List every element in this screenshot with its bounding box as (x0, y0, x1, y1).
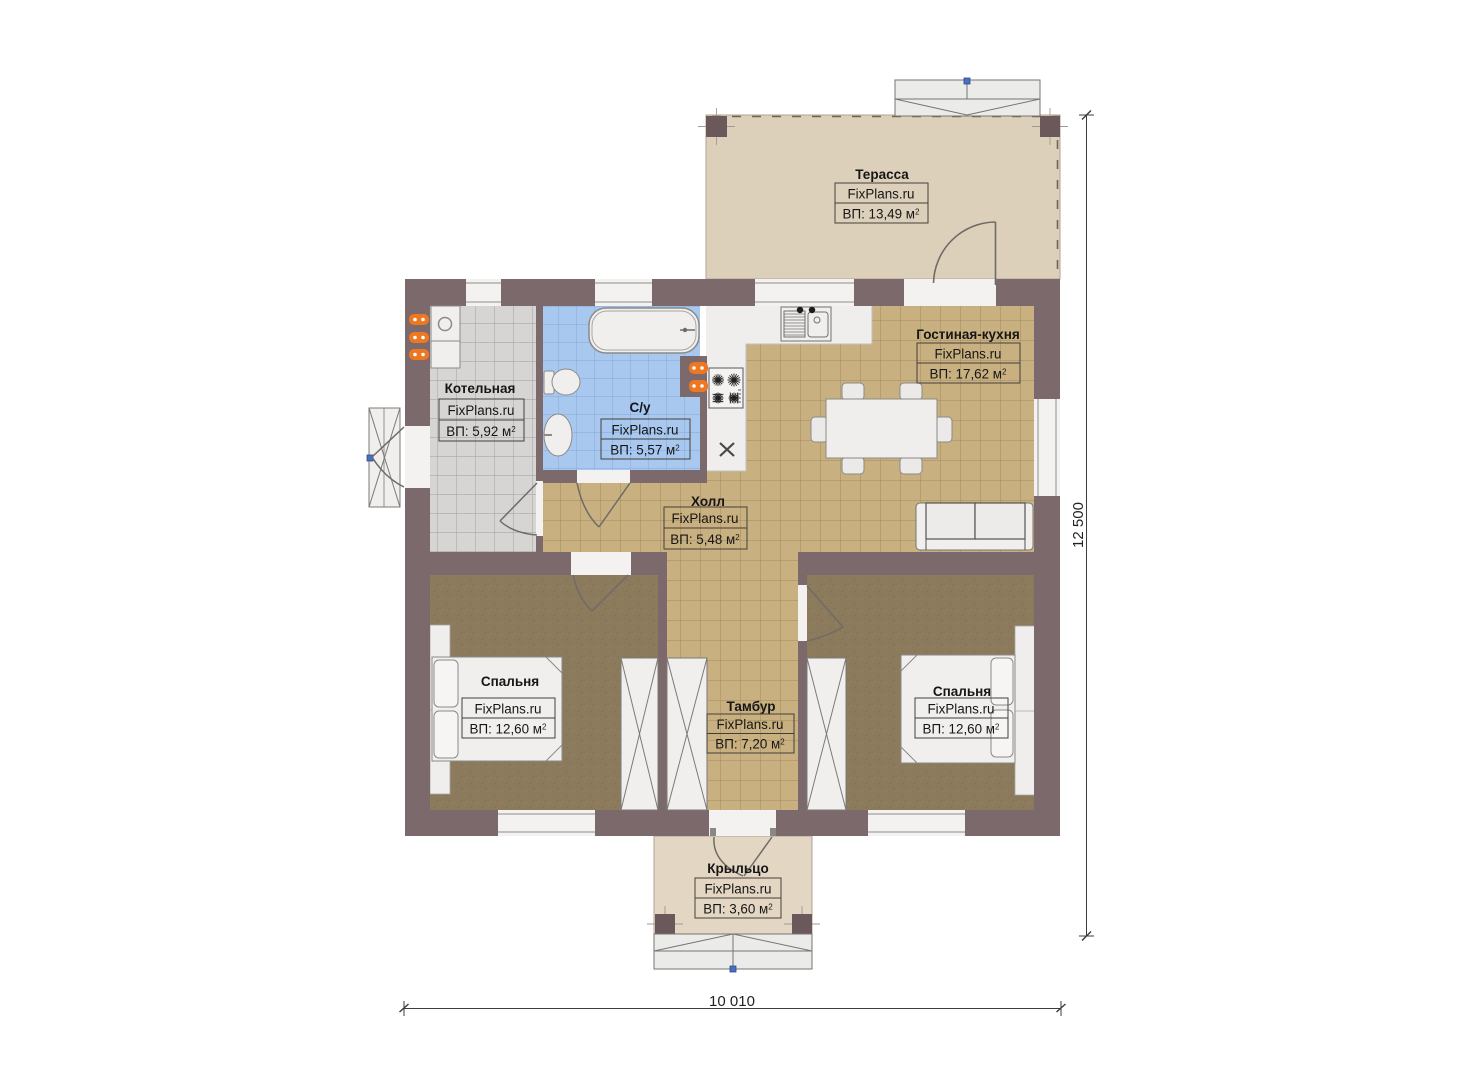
svg-text:Спальня: Спальня (933, 684, 991, 699)
svg-text:FixPlans.ru: FixPlans.ru (935, 347, 1002, 362)
svg-text:Терасса: Терасса (855, 167, 909, 182)
svg-text:10 010: 10 010 (709, 993, 755, 1010)
svg-text:Котельная: Котельная (445, 381, 516, 396)
svg-text:Тамбур: Тамбур (727, 699, 776, 714)
svg-text:FixPlans.ru: FixPlans.ru (612, 423, 679, 438)
svg-text:FixPlans.ru: FixPlans.ru (928, 702, 995, 717)
svg-text:FixPlans.ru: FixPlans.ru (705, 882, 772, 897)
svg-text:Крыльцо: Крыльцо (707, 861, 768, 876)
svg-text:ВП: 3,60 м2: ВП: 3,60 м2 (703, 902, 773, 917)
svg-text:FixPlans.ru: FixPlans.ru (848, 187, 915, 202)
svg-text:FixPlans.ru: FixPlans.ru (672, 511, 739, 526)
svg-text:ВП: 12,60 м2: ВП: 12,60 м2 (470, 722, 547, 737)
svg-text:ВП: 5,57 м2: ВП: 5,57 м2 (610, 443, 680, 458)
svg-text:ВП: 12,60 м2: ВП: 12,60 м2 (923, 722, 1000, 737)
svg-text:FixPlans.ru: FixPlans.ru (717, 717, 784, 732)
svg-text:Спальня: Спальня (481, 674, 539, 689)
svg-text:12 500: 12 500 (1070, 502, 1087, 548)
svg-text:С/у: С/у (629, 400, 651, 415)
svg-text:FixPlans.ru: FixPlans.ru (475, 702, 542, 717)
svg-text:ВП: 5,48 м2: ВП: 5,48 м2 (670, 532, 740, 547)
svg-text:ВП: 7,20 м2: ВП: 7,20 м2 (715, 737, 785, 752)
svg-text:ВП: 5,92 м2: ВП: 5,92 м2 (446, 424, 516, 439)
svg-text:ВП: 17,62 м2: ВП: 17,62 м2 (930, 367, 1007, 382)
svg-text:ВП: 13,49 м2: ВП: 13,49 м2 (843, 207, 920, 222)
svg-text:Гостиная-кухня: Гостиная-кухня (916, 327, 1019, 342)
svg-text:FixPlans.ru: FixPlans.ru (448, 403, 515, 418)
